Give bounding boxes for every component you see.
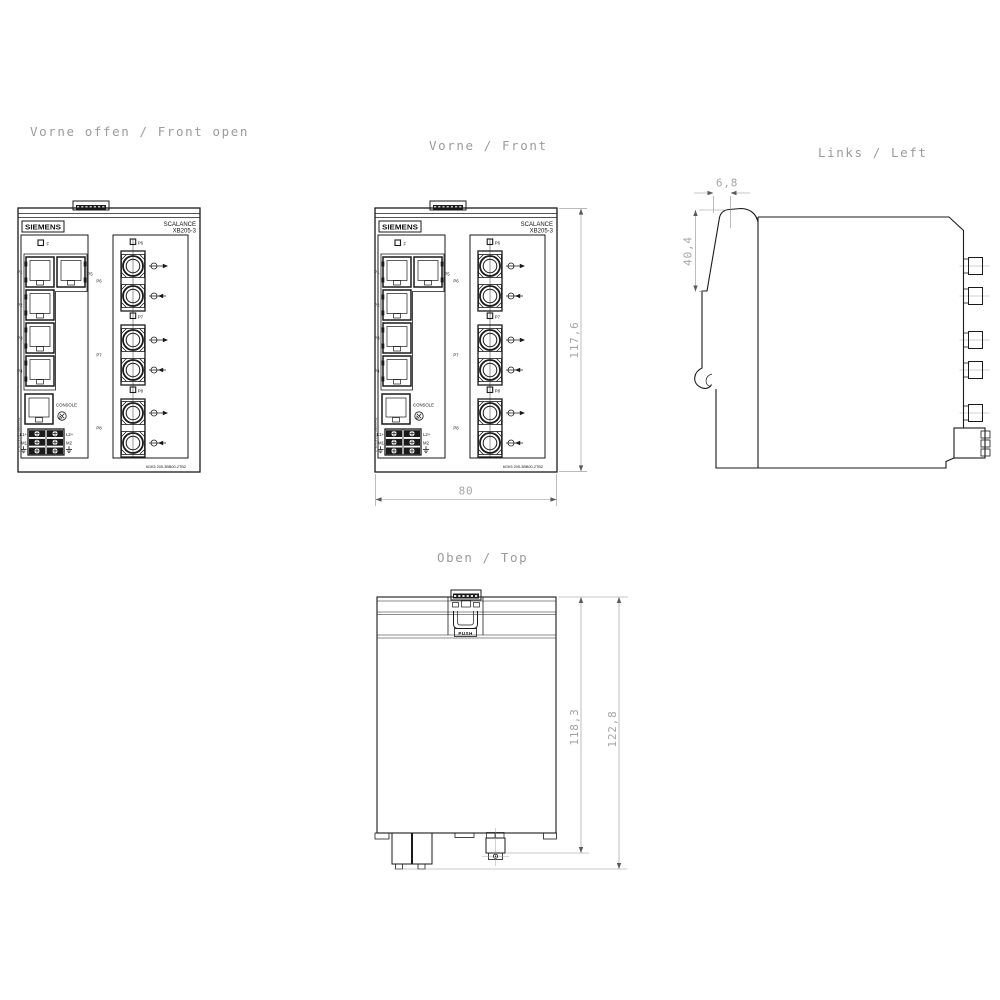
svg-text:40,4: 40,4	[682, 236, 695, 266]
dimension-rail-height: 40,4	[682, 210, 728, 292]
front-open-view	[17, 201, 200, 472]
dimension-top-depth-inner: 118,3	[506, 597, 589, 853]
top-front-connectors	[375, 828, 557, 869]
dimension-rail-tab-depth: 6,8	[694, 177, 750, 229]
dimension-front-height: 117,6	[559, 209, 587, 472]
terminal-block-side	[954, 428, 990, 458]
title-left: Links / Left	[818, 145, 928, 160]
side-housing-outline	[695, 209, 964, 469]
svg-text:80: 80	[459, 485, 474, 498]
title-front-open: Vorne offen / Front open	[30, 124, 249, 139]
svg-text:118,3: 118,3	[568, 708, 581, 745]
terminal-stub-top	[482, 828, 509, 866]
din-rail-profile	[695, 209, 758, 389]
title-top: Oben / Top	[437, 550, 528, 565]
title-front: Vorne / Front	[429, 138, 548, 153]
push-label: PUSH	[458, 631, 473, 636]
left-view: 6,8 40,4	[682, 177, 991, 469]
top-view: PUSH 1	[375, 590, 628, 869]
svg-text:122,8: 122,8	[606, 710, 619, 747]
dimension-front-width: 80	[376, 474, 557, 506]
latch-handle	[454, 611, 478, 629]
din-rail-latch: PUSH	[448, 590, 483, 637]
front-view: 117,6 80	[374, 201, 587, 506]
dimensional-drawing-page: SIEMENS SCALANCE XB205-3 F P1 P2 P3	[0, 0, 1000, 1000]
svg-text:6,8: 6,8	[716, 177, 738, 190]
svg-text:117,6: 117,6	[568, 321, 581, 358]
fiber-stub-top	[412, 833, 433, 864]
fiber-stub-top	[392, 833, 413, 864]
